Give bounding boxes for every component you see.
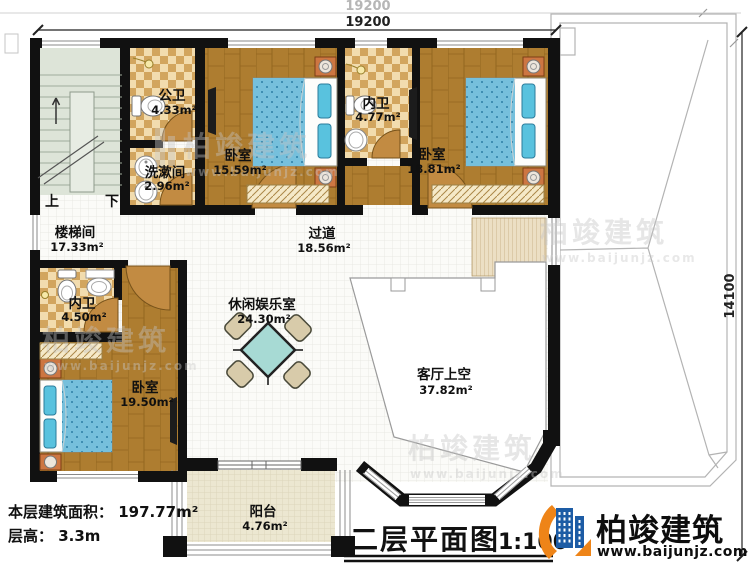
floor-height-text: 层高： 3.3m bbox=[8, 527, 100, 545]
sink-icon bbox=[345, 129, 367, 151]
brand-website: www.baijunjz.com bbox=[597, 544, 748, 560]
label-living-void: 客厅上空 bbox=[416, 366, 471, 383]
balcony-post bbox=[163, 536, 187, 557]
watermark-url: www.baijunjz.com bbox=[542, 251, 697, 265]
dim-right: 14100 bbox=[723, 273, 738, 318]
area-bedroom-top: 15.59m² bbox=[213, 163, 266, 177]
area-public-bath: 4.33m² bbox=[151, 103, 196, 117]
lamp-icon bbox=[42, 292, 49, 299]
floor-plan-page: 柏竣建筑 www.baijunjz.com 柏竣建筑 www.baijunjz.… bbox=[0, 0, 750, 570]
void-notch bbox=[391, 278, 405, 291]
watermark-url: www.baijunjz.com bbox=[410, 467, 565, 481]
floor-area-text: 本层建筑面积： 197.77m² bbox=[8, 503, 198, 521]
floor-plan-canvas: 柏竣建筑 www.baijunjz.com 柏竣建筑 www.baijunjz.… bbox=[0, 0, 750, 570]
area-bedroom-right: 18.81m² bbox=[407, 162, 460, 176]
void-notch bbox=[481, 278, 495, 291]
watermark-text: 柏竣建筑 bbox=[540, 216, 668, 249]
bed-icon bbox=[40, 380, 112, 452]
area-living-void: 37.82m² bbox=[419, 383, 472, 397]
plan-title: 二层平面图 bbox=[350, 523, 500, 556]
label-leisure-room: 休闲娱乐室 bbox=[227, 296, 296, 313]
dim-top-outer: 19200 bbox=[345, 0, 390, 14]
sliding-door bbox=[218, 461, 301, 469]
area-stair-hall: 17.33m² bbox=[50, 240, 103, 254]
window bbox=[30, 215, 40, 250]
label-public-bath: 公卫 bbox=[159, 88, 186, 104]
window bbox=[355, 38, 387, 48]
wardrobe-icon bbox=[432, 185, 544, 203]
wardrobe-icon bbox=[247, 185, 329, 203]
stair-down-label: 下 bbox=[105, 194, 119, 210]
window bbox=[57, 471, 138, 482]
label-hallway: 过道 bbox=[309, 225, 336, 242]
nightstand-icon bbox=[523, 57, 544, 76]
nightstand-icon bbox=[315, 57, 336, 76]
window bbox=[42, 38, 100, 48]
area-washroom: 2.96m² bbox=[144, 179, 189, 193]
title-underline bbox=[344, 556, 553, 561]
watermark-text: 柏竣建筑 bbox=[42, 324, 170, 357]
label-bedroom-bottom: 卧室 bbox=[132, 379, 159, 396]
area-ensuite-top: 4.77m² bbox=[355, 110, 400, 124]
label-bedroom-top: 卧室 bbox=[225, 147, 252, 164]
window bbox=[228, 38, 315, 48]
label-bedroom-right: 卧室 bbox=[419, 146, 446, 163]
window bbox=[437, 38, 523, 48]
area-ensuite-left: 4.50m² bbox=[61, 310, 106, 324]
brand-logo: 柏竣建筑 www.baijunjz.com bbox=[539, 505, 748, 560]
watermark-text: 柏竣建筑 bbox=[408, 432, 536, 465]
label-balcony: 阳台 bbox=[250, 503, 277, 520]
exterior-fragment bbox=[5, 34, 18, 53]
area-bedroom-bottom: 19.50m² bbox=[120, 395, 173, 409]
nightstand-icon bbox=[40, 454, 61, 470]
stair-up-label: 上 bbox=[45, 194, 59, 210]
tv-icon bbox=[208, 87, 216, 135]
corridor-floor bbox=[345, 166, 412, 205]
bed-icon bbox=[466, 78, 546, 166]
area-leisure-room: 24.30m² bbox=[237, 312, 290, 326]
label-stair-hall: 楼梯间 bbox=[55, 224, 96, 241]
nightstand-icon bbox=[523, 168, 544, 187]
area-balcony: 4.76m² bbox=[242, 519, 287, 533]
watermark-url: www.baijunjz.com bbox=[44, 359, 199, 373]
dim-top: 19200 bbox=[345, 15, 390, 30]
tv-icon bbox=[409, 87, 417, 140]
area-hallway: 18.56m² bbox=[297, 241, 350, 255]
